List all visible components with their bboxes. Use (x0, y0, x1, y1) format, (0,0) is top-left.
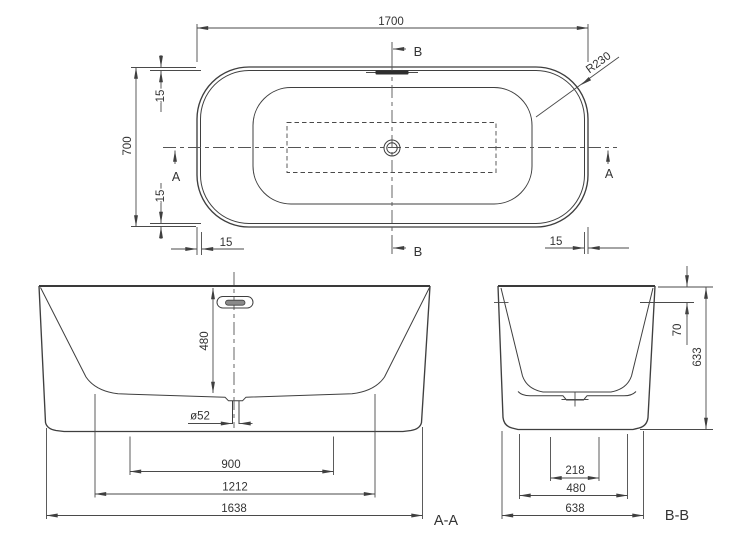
section-bb-view: 70 633 218 480 638 B-B (494, 266, 713, 524)
dim-drain-diameter: ø52 (188, 411, 253, 424)
aa-overflow-slot (226, 300, 246, 305)
dim-rim-15-top: 15 (150, 55, 201, 112)
dim-rim-15-right: 15 (545, 227, 629, 254)
dim-1700: 1700 (197, 16, 588, 62)
section-label-bb: B-B (665, 508, 689, 524)
section-marker-b-bottom: B (393, 244, 422, 259)
bb-bottom-far-edge (518, 392, 636, 401)
dim-900-text: 900 (221, 459, 240, 471)
dim-70-text: 70 (672, 324, 684, 337)
section-marker-a-right-text: A (605, 167, 614, 181)
dim-1212-text: 1212 (222, 482, 248, 494)
section-marker-a-left: A (172, 151, 181, 185)
overflow-slot-top (376, 71, 409, 75)
dim-rim-15-left-text: 15 (220, 237, 233, 249)
section-aa-view: 480 ø52 900 1212 1638 A-A (39, 272, 458, 529)
dim-480-base-text: 480 (566, 483, 585, 495)
dim-218-text: 218 (565, 465, 584, 477)
bb-drain-center-cross (562, 393, 589, 407)
plan-rim-line (201, 71, 585, 224)
section-marker-b-bottom-text: B (414, 244, 423, 259)
dim-rim-15-right-text: 15 (550, 236, 563, 248)
bb-interior-profile (501, 288, 653, 392)
dim-218: 218 (551, 437, 600, 481)
plan-basin-outline (253, 88, 532, 205)
radius-callout-r230: R230 (536, 50, 619, 117)
dim-480-depth: 480 (199, 288, 213, 393)
plan-outer-outline (197, 67, 588, 227)
section-marker-b-top: B (393, 44, 422, 59)
section-marker-b-top-text: B (414, 44, 423, 59)
dim-480-depth-text: 480 (199, 331, 211, 350)
bb-outer-profile (498, 286, 655, 430)
dim-900: 900 (130, 437, 334, 476)
dim-633-text: 633 (692, 347, 704, 366)
plan-view: 1700 700 15 15 15 (122, 16, 629, 259)
dim-1212: 1212 (95, 394, 375, 498)
section-marker-a-left-text: A (172, 170, 181, 184)
section-marker-a-right: A (605, 151, 614, 182)
bathtub-drawing: 1700 700 15 15 15 (0, 0, 750, 536)
dim-drain-diameter-text: ø52 (190, 411, 210, 423)
dim-1700-text: 1700 (378, 16, 404, 28)
dim-1638: 1638 (47, 427, 423, 519)
dim-rim-15-bottom-text: 15 (155, 190, 167, 203)
dim-rim-15-left: 15 (171, 227, 244, 255)
technical-drawing-canvas: 1700 700 15 15 15 (0, 0, 750, 536)
section-label-aa: A-A (434, 513, 459, 529)
dim-rim-15-top-text: 15 (155, 90, 167, 103)
radius-arrowhead (581, 77, 591, 85)
dim-700-text: 700 (122, 136, 134, 155)
dim-638-text: 638 (565, 503, 584, 515)
dim-rim-15-bottom: 15 (150, 183, 201, 239)
dim-1638-text: 1638 (221, 503, 247, 515)
aa-drain-pipe (233, 401, 240, 424)
dim-70-overflow: 70 (640, 266, 713, 345)
